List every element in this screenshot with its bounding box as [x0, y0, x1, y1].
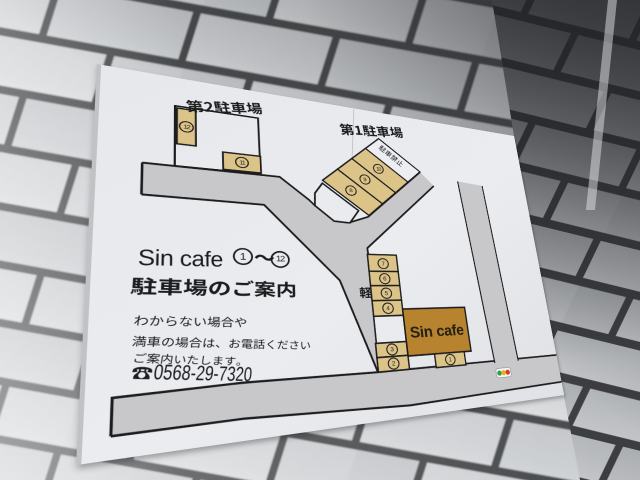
- svg-text:0568-29-7320: 0568-29-7320: [152, 360, 253, 386]
- svg-text:Sin cafe: Sin cafe: [137, 245, 223, 271]
- svg-text:Sin cafe: Sin cafe: [409, 322, 465, 342]
- svg-text:11: 11: [239, 159, 245, 166]
- svg-text:1: 1: [240, 251, 247, 263]
- svg-text:12: 12: [183, 123, 190, 131]
